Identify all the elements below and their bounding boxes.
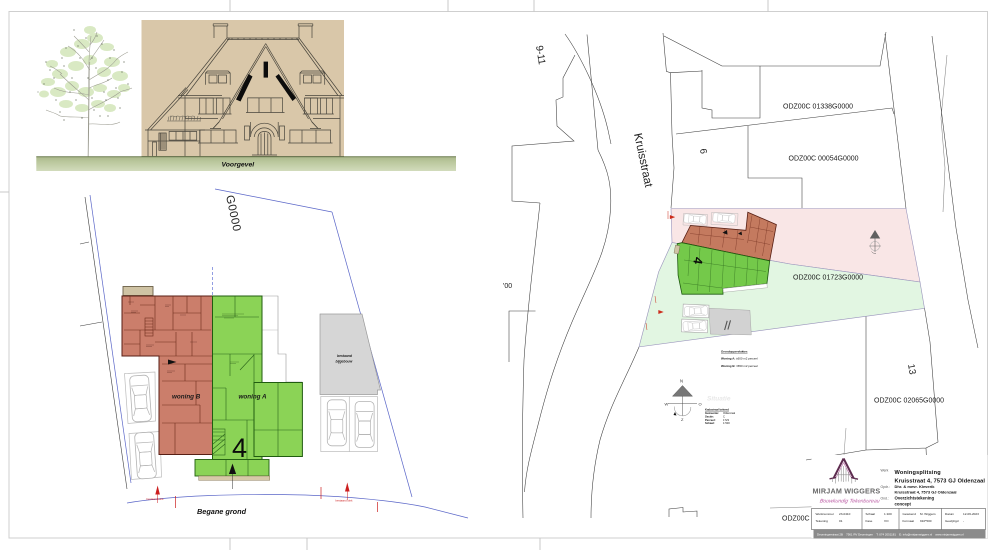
svg-text:Deurningerstraat 2B 7561 RV: Deurningerstraat 2B 7561 RV Deurningen T… (817, 533, 964, 537)
svg-text:Woningsplitsing: Woningsplitsing (895, 470, 942, 476)
svg-text:Situatie: Situatie (707, 396, 731, 403)
svg-text:01: 01 (839, 519, 843, 523)
svg-text:Formaat: Formaat (903, 519, 915, 523)
svg-text:N: N (680, 379, 683, 384)
svg-text:bijgebouw: bijgebouw (336, 360, 353, 364)
svg-text:12-06-2023: 12-06-2023 (963, 512, 979, 516)
svg-text:Woning B: ±650 m2 perceel: Woning B: ±650 m2 perceel (721, 364, 758, 368)
svg-text:Kruisstraat: Kruisstraat (631, 132, 654, 189)
svg-text:O: O (699, 401, 702, 406)
svg-text:Schaal:: Schaal: (705, 421, 715, 425)
svg-text:Overzichtstekening: Overzichtstekening (895, 495, 935, 500)
svg-text:Begane grond: Begane grond (197, 507, 247, 516)
svg-text:Tekening: Tekening (816, 519, 829, 523)
svg-text:Datum: Datum (945, 512, 955, 516)
svg-text:ODZ00C 01338G0000: ODZ00C 01338G0000 (783, 104, 853, 111)
svg-text:bestaand: bestaand (337, 354, 353, 358)
svg-text:Dhr. & mevr. Kleverik: Dhr. & mevr. Kleverik (895, 484, 936, 489)
svg-text:bestaand uitrit: bestaand uitrit (147, 497, 164, 501)
svg-text:G0000: G0000 (223, 194, 242, 233)
svg-text:Gemeente:: Gemeente: (705, 411, 719, 415)
svg-text:910*500: 910*500 (920, 519, 932, 523)
svg-text:Gewijzigd: Gewijzigd (945, 519, 959, 523)
svg-text:W: W (665, 401, 669, 406)
svg-text:23-0410: 23-0410 (839, 512, 851, 516)
svg-text:Opdr.:: Opdr.: (881, 485, 890, 489)
svg-text:9-11: 9-11 (533, 45, 547, 66)
svg-text:Oldenzaal: Oldenzaal (723, 411, 736, 415)
svg-text:Woning A: ±600 m2 perceel: Woning A: ±600 m2 perceel (721, 357, 758, 361)
svg-text:ODZ00C 00054G0000: ODZ00C 00054G0000 (789, 156, 859, 163)
svg-text:Sectie:: Sectie: (705, 414, 714, 418)
svg-text:Kruisstraat 4, 7573 GJ Oldenza: Kruisstraat 4, 7573 GJ Oldenzaal (895, 490, 957, 495)
svg-text:ODZ00C 01723G0000: ODZ00C 01723G0000 (793, 275, 863, 282)
svg-text:Grondoppervlaktes: Grondoppervlaktes (721, 350, 748, 354)
svg-text:6: 6 (697, 148, 709, 155)
svg-text:1:500: 1:500 (723, 421, 730, 425)
svg-text:Kadastraal bekend: Kadastraal bekend (705, 408, 729, 412)
svg-text:Schaal: Schaal (866, 512, 876, 516)
svg-text:-: - (963, 519, 964, 523)
svg-text:13: 13 (905, 363, 918, 375)
svg-text:Voorgevel: Voorgevel (222, 162, 255, 169)
svg-text:Werknummer: Werknummer (816, 512, 835, 516)
svg-text:'00: '00 (503, 283, 512, 290)
svg-text:C: C (723, 414, 725, 418)
svg-text:M. Wiggers: M. Wiggers (920, 512, 936, 516)
svg-text:Werk: Werk (881, 469, 889, 473)
svg-text:bestaand uitrit: bestaand uitrit (336, 499, 353, 503)
svg-text:1:100: 1:100 (884, 512, 892, 516)
svg-text:VO: VO (884, 519, 889, 523)
svg-text:concept: concept (895, 501, 912, 506)
svg-text:Perceel:: Perceel: (705, 418, 716, 422)
svg-text:Bouwkundig Tekenbureau: Bouwkundig Tekenbureau (819, 499, 880, 505)
svg-text:ODZ00C 02065G0000: ODZ00C 02065G0000 (874, 398, 944, 405)
svg-text:Ond.:: Ond.: (881, 496, 889, 500)
svg-text:Z: Z (681, 417, 684, 422)
svg-text:Fase: Fase (866, 519, 873, 523)
svg-text:Getekend: Getekend (903, 512, 917, 516)
svg-text:MIRJAM WIGGERS: MIRJAM WIGGERS (813, 487, 881, 496)
svg-text:1723: 1723 (723, 418, 729, 422)
